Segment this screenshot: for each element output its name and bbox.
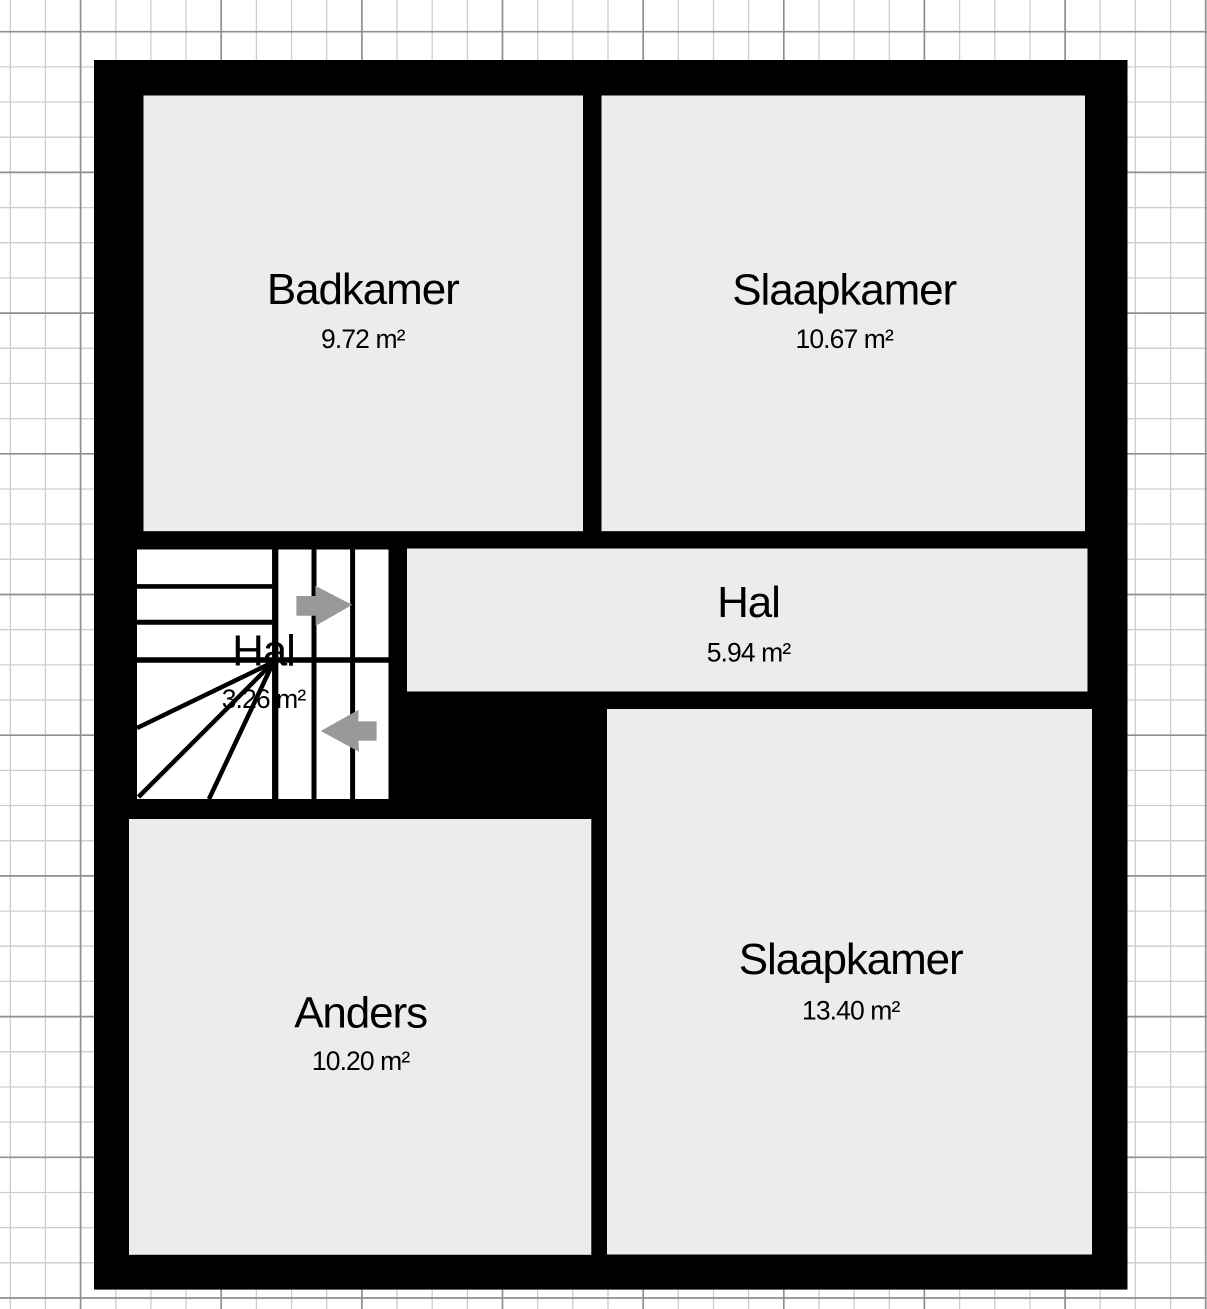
svg-text:10.67 m²: 10.67 m² bbox=[796, 324, 894, 354]
svg-text:Hal: Hal bbox=[717, 578, 780, 627]
svg-text:9.72 m²: 9.72 m² bbox=[321, 324, 406, 354]
svg-text:5.94 m²: 5.94 m² bbox=[707, 638, 792, 668]
svg-text:3.26 m²: 3.26 m² bbox=[222, 684, 307, 714]
svg-text:Slaapkamer: Slaapkamer bbox=[732, 265, 956, 314]
svg-text:Slaapkamer: Slaapkamer bbox=[739, 935, 963, 984]
svg-text:Anders: Anders bbox=[294, 989, 427, 1038]
svg-text:10.20 m²: 10.20 m² bbox=[312, 1046, 410, 1076]
svg-text:Badkamer: Badkamer bbox=[267, 265, 459, 314]
svg-text:Hal: Hal bbox=[232, 627, 295, 676]
svg-text:13.40 m²: 13.40 m² bbox=[802, 995, 900, 1025]
